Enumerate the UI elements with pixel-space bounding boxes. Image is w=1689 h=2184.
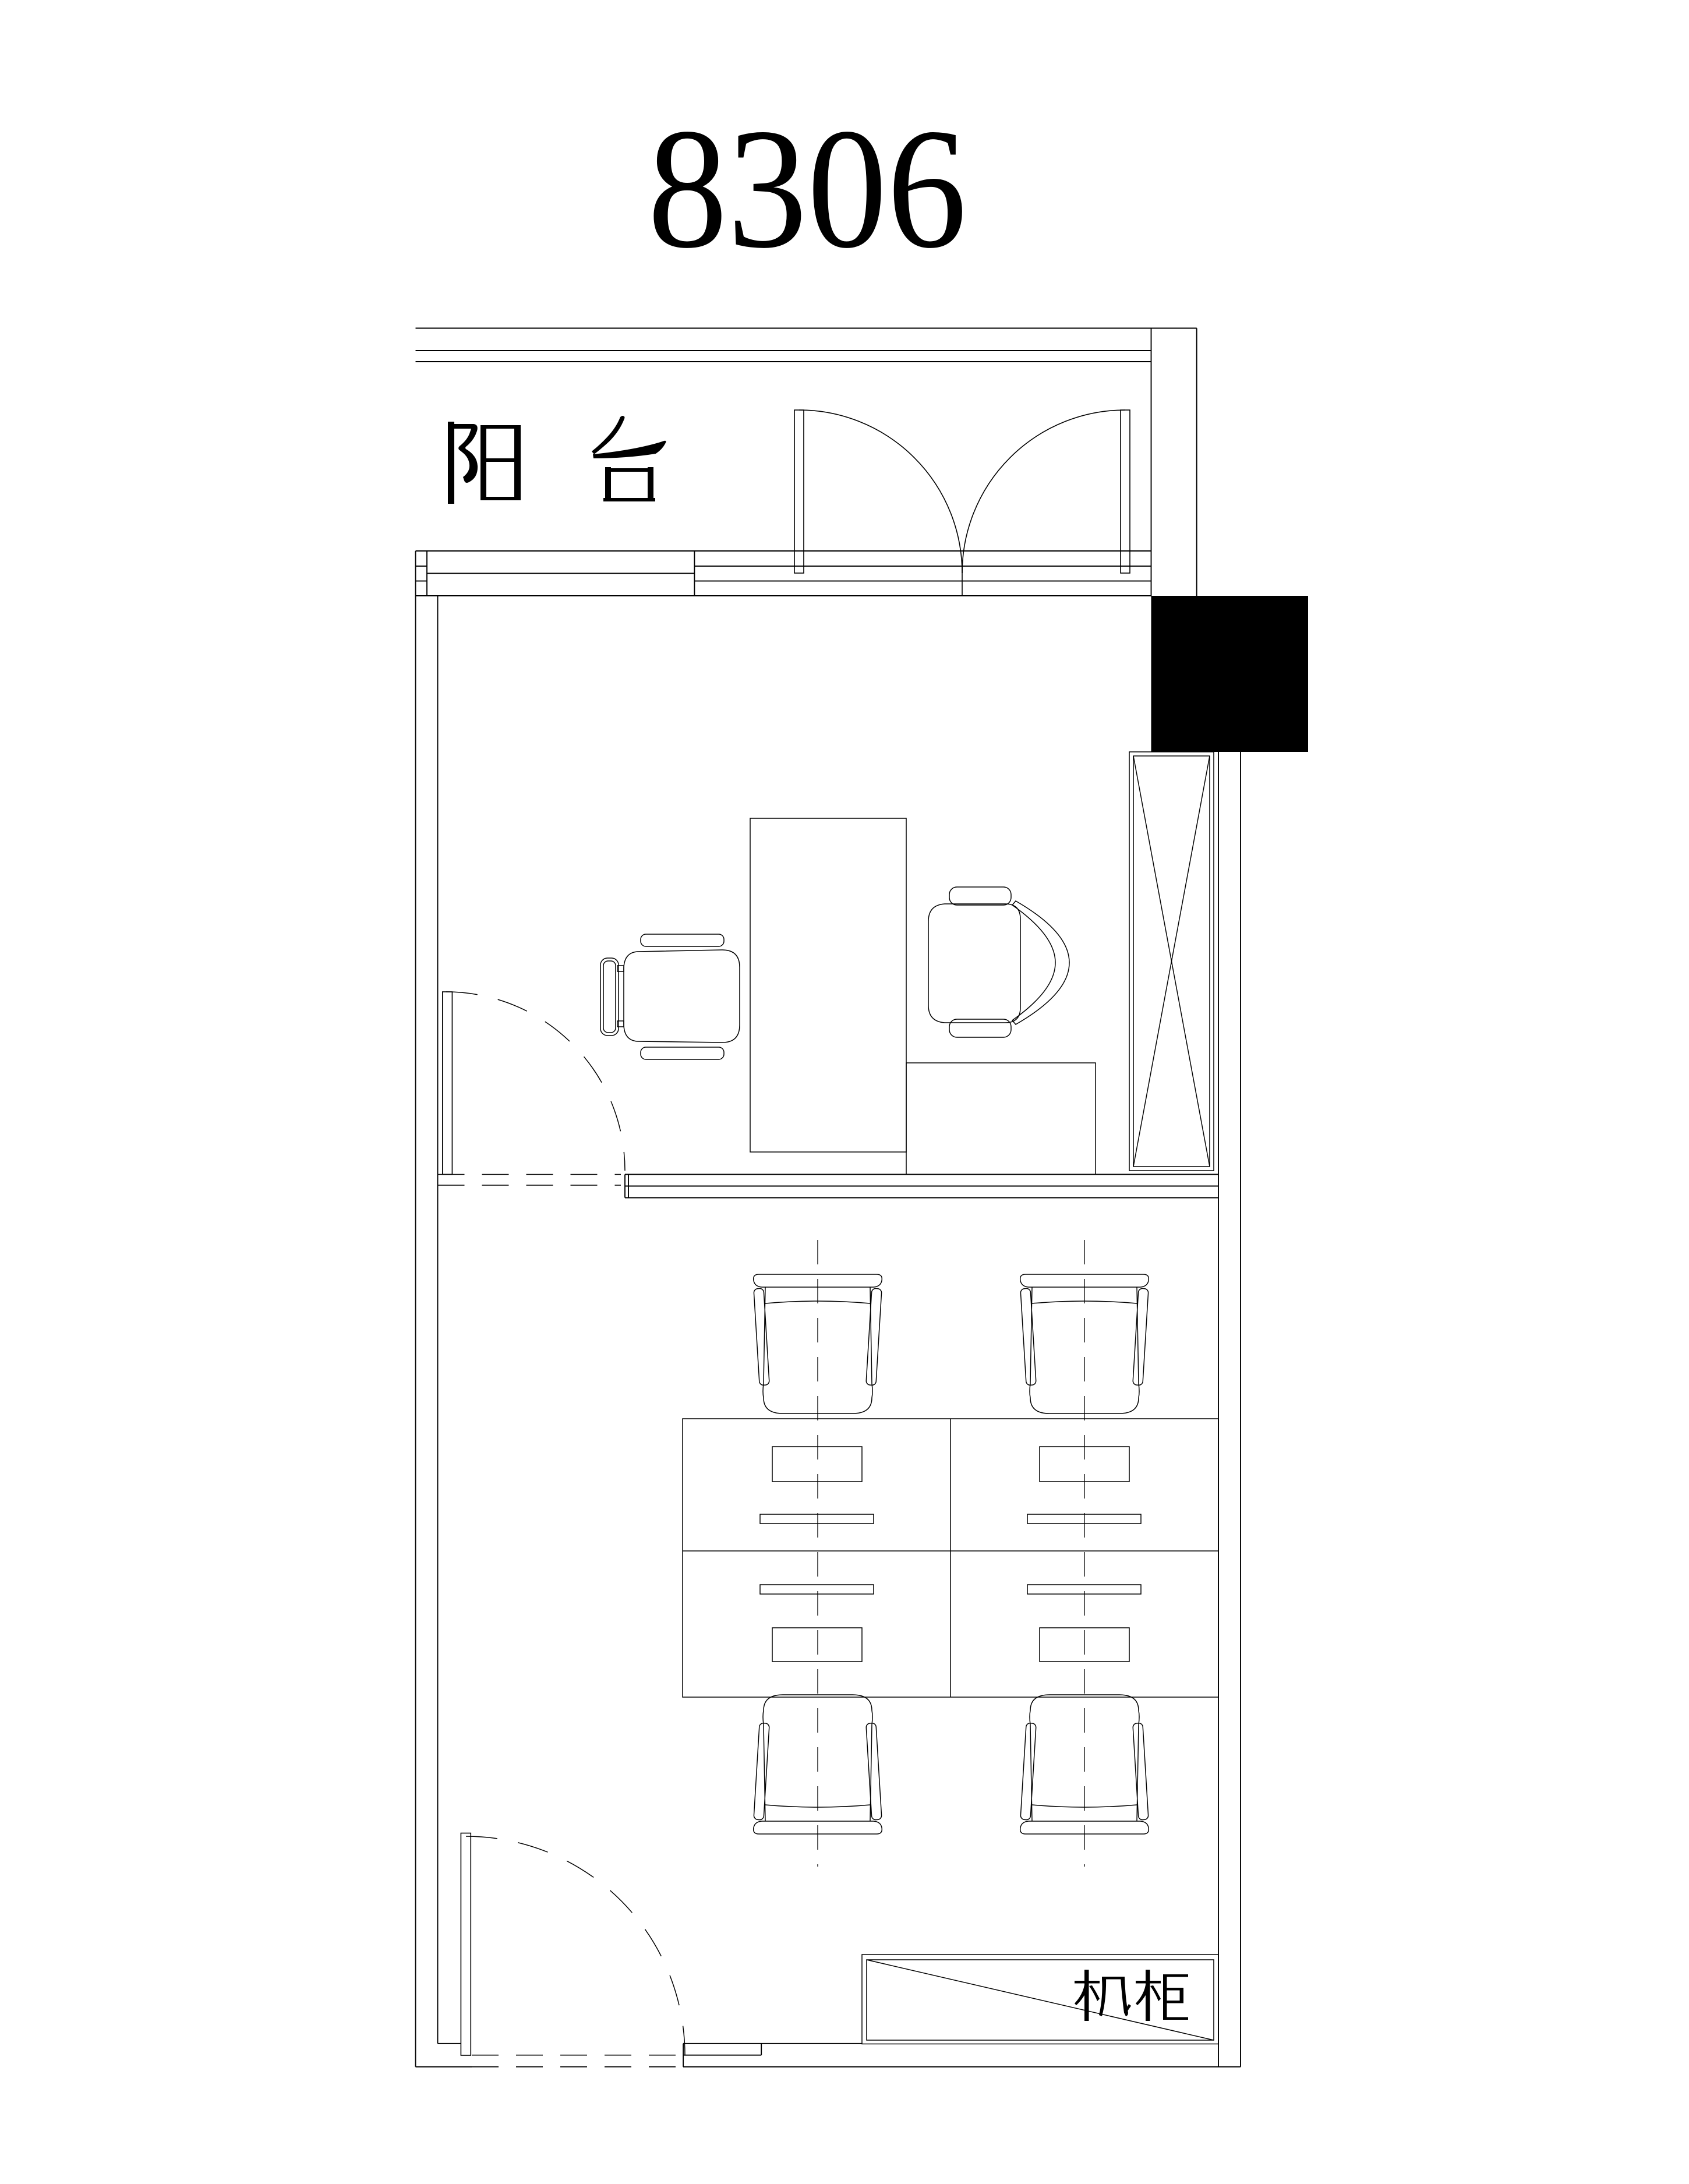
svg-text:8306: 8306 bbox=[648, 93, 967, 284]
